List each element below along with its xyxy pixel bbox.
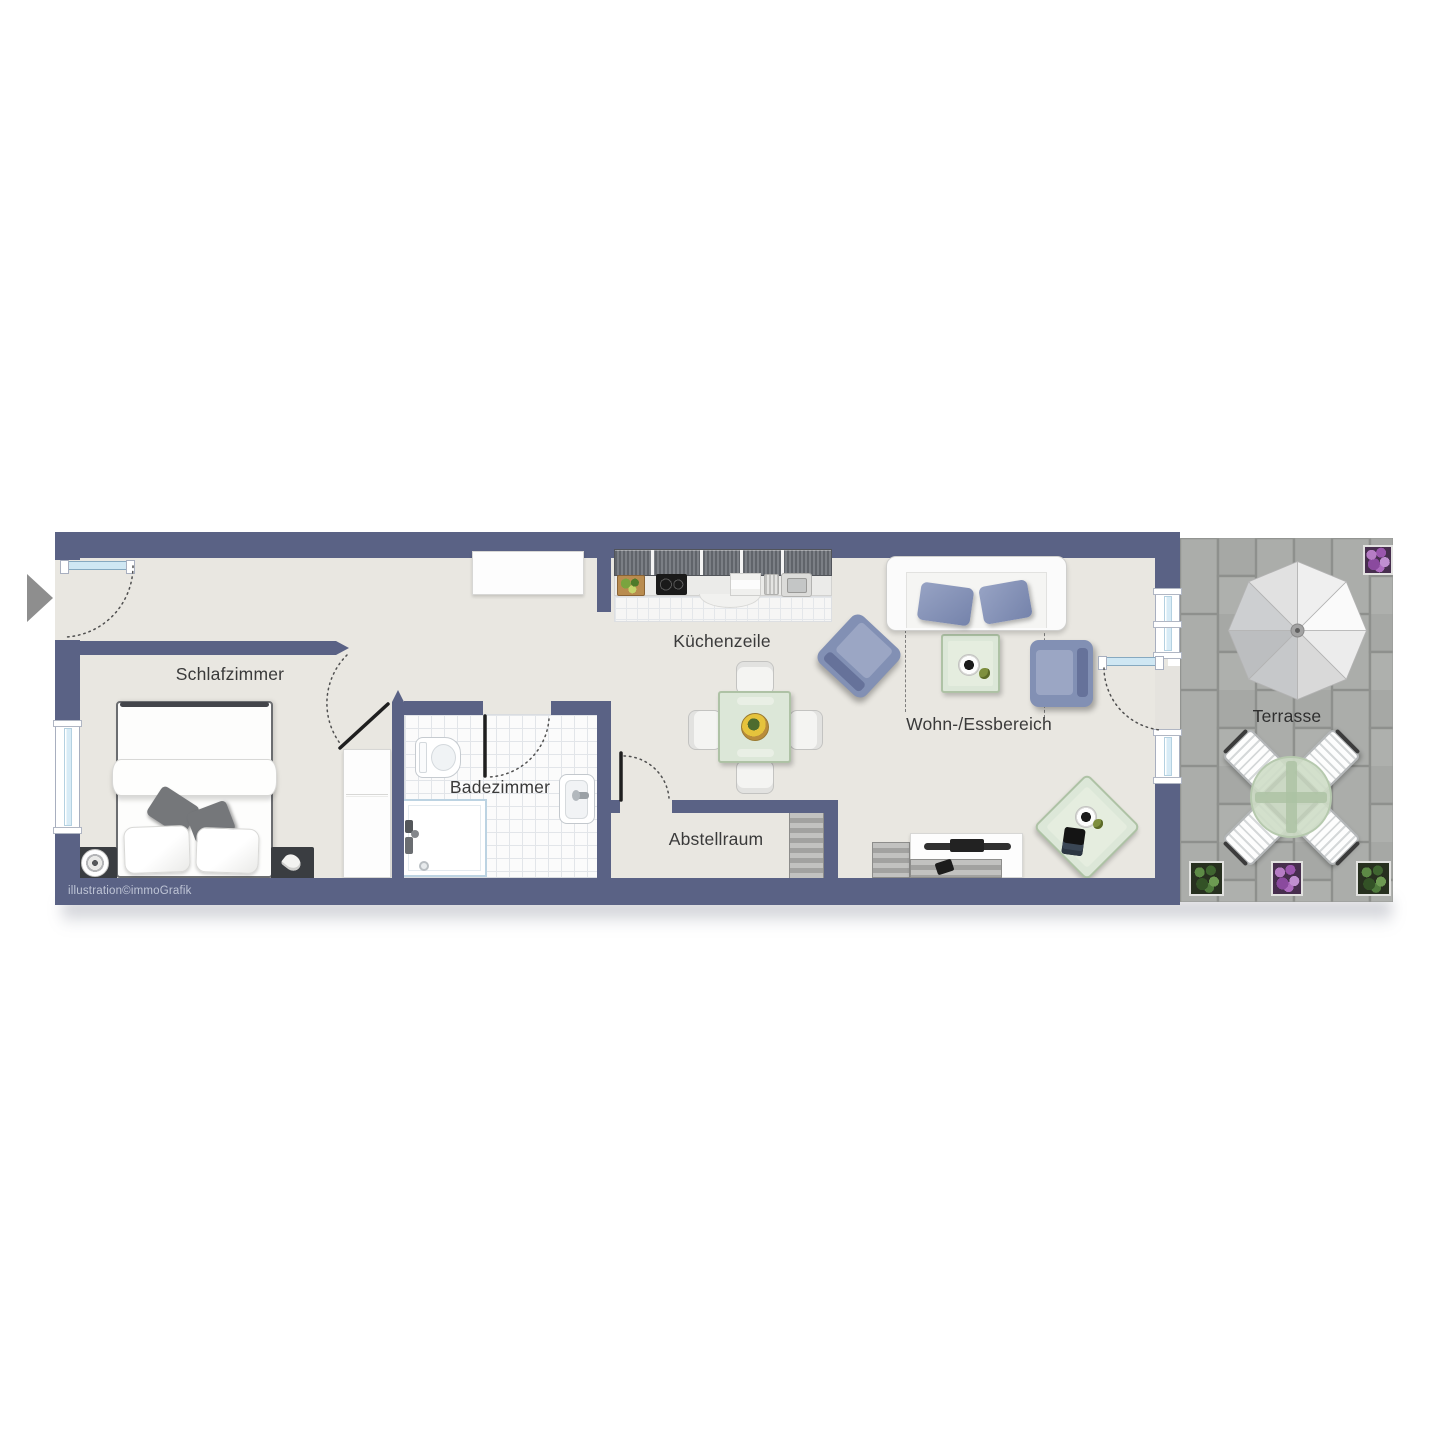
tv-stand	[950, 839, 984, 852]
washbasin-faucet	[572, 790, 580, 801]
shower-head	[411, 830, 419, 838]
bed-pillow	[123, 825, 191, 874]
entrance-door-leaf	[62, 561, 133, 570]
bed-pillow	[195, 827, 260, 874]
shower-tray-line	[408, 805, 481, 871]
room-label-badezimmer: Badezimmer	[450, 777, 550, 798]
wall-bathroom-right	[597, 701, 611, 878]
dining-chair-top	[736, 661, 774, 695]
wall-bathroom-left	[392, 702, 404, 878]
toilet	[415, 737, 461, 778]
floor-plan-canvas: Schlafzimmer Küchenzeile Badezimmer Abst…	[0, 0, 1440, 1440]
dining-chair-left	[688, 710, 722, 750]
wall-right-upper	[1155, 532, 1180, 591]
sofa-pillow	[917, 581, 975, 626]
shower-fixture	[405, 837, 413, 854]
watermark: illustration©immoGrafik	[68, 885, 192, 897]
bedroom-window	[55, 721, 80, 833]
living-window-upper	[1155, 589, 1180, 658]
parasol	[1227, 560, 1368, 701]
wall-storage-right	[824, 800, 838, 878]
wall-bedroom-top-cap	[336, 641, 349, 655]
tv-dresser	[872, 842, 910, 878]
wall-right-lower	[1155, 781, 1180, 878]
tablet	[1061, 827, 1086, 857]
room-label-wohn-essbereich: Wohn-/Essbereich	[906, 714, 1052, 735]
planter-green-right	[1356, 861, 1391, 896]
terrace-door-threshold	[1155, 666, 1180, 730]
cutting-board	[617, 575, 645, 596]
wall-left-mid	[55, 640, 80, 723]
armchair-right	[1030, 640, 1093, 707]
terrace-door-leaf	[1100, 657, 1162, 666]
wardrobe-divider	[346, 794, 388, 795]
cooktop	[656, 574, 687, 595]
bed-foot-edge	[120, 702, 269, 707]
washbasin	[559, 774, 595, 824]
fruit-bowl	[741, 713, 769, 741]
room-label-abstellraum: Abstellraum	[669, 829, 764, 850]
wall-kitchen-stub	[597, 558, 611, 612]
nightstand-right	[271, 847, 314, 880]
toilet-tank	[419, 742, 427, 773]
bedside-lamp	[81, 849, 109, 877]
kitchen-drawer-unit	[730, 573, 761, 596]
armchair-seat	[1036, 650, 1073, 695]
terrace-table-cross	[1286, 761, 1297, 833]
window-frame-cap	[1153, 621, 1182, 628]
wardrobe-divider	[346, 796, 388, 797]
room-label-kuechenzeile: Küchenzeile	[673, 631, 771, 652]
shower-drain	[419, 861, 429, 871]
armchair-backrest	[1077, 648, 1088, 697]
planter-purple-bottom	[1271, 861, 1303, 896]
storage-shelf	[789, 812, 824, 879]
hall-sideboard	[472, 551, 584, 595]
wall-left-lower	[55, 833, 80, 878]
dish-rack	[764, 574, 779, 595]
coffee-table	[941, 634, 1000, 693]
entrance-arrow	[27, 574, 53, 622]
kitchen-sink	[781, 573, 812, 597]
wall-bedroom-top	[80, 641, 336, 655]
terrace-table	[1250, 756, 1332, 838]
toilet-bowl	[431, 744, 456, 771]
window-frame-cap	[53, 827, 82, 834]
window-frame-cap	[1153, 729, 1182, 736]
plate	[958, 654, 980, 676]
planter-green-left	[1189, 861, 1224, 896]
nightstand-decor	[280, 851, 303, 874]
wall-storage-top	[672, 800, 838, 813]
living-window-lower	[1155, 730, 1180, 783]
sofa	[886, 556, 1067, 631]
room-label-terrasse: Terrasse	[1253, 706, 1322, 727]
bed-duvet-fold	[112, 759, 277, 796]
wardrobe	[343, 749, 391, 878]
kitchen-cabinets	[614, 549, 832, 576]
shower	[402, 799, 487, 877]
wall-bathroom-left-cap	[392, 690, 404, 702]
window-frame-cap	[53, 720, 82, 727]
window-glass	[1164, 737, 1172, 776]
dining-table-tab	[737, 697, 774, 705]
dining-chair-bottom	[736, 760, 774, 794]
wall-bathroom-top-left	[404, 701, 483, 715]
window-frame-cap	[1153, 777, 1182, 784]
room-label-schlafzimmer: Schlafzimmer	[176, 664, 284, 685]
dining-table-tab	[737, 749, 774, 757]
wall-storage-left	[597, 800, 620, 813]
wall-left-upper	[55, 532, 80, 560]
sink-basin	[787, 578, 807, 593]
tv-lowboard	[910, 859, 1002, 878]
window-glass	[64, 728, 72, 826]
window-frame-cap	[1153, 588, 1182, 595]
dining-chair-right	[789, 710, 823, 750]
area-divider-dashed	[905, 630, 906, 712]
wall-bottom	[55, 878, 1180, 905]
